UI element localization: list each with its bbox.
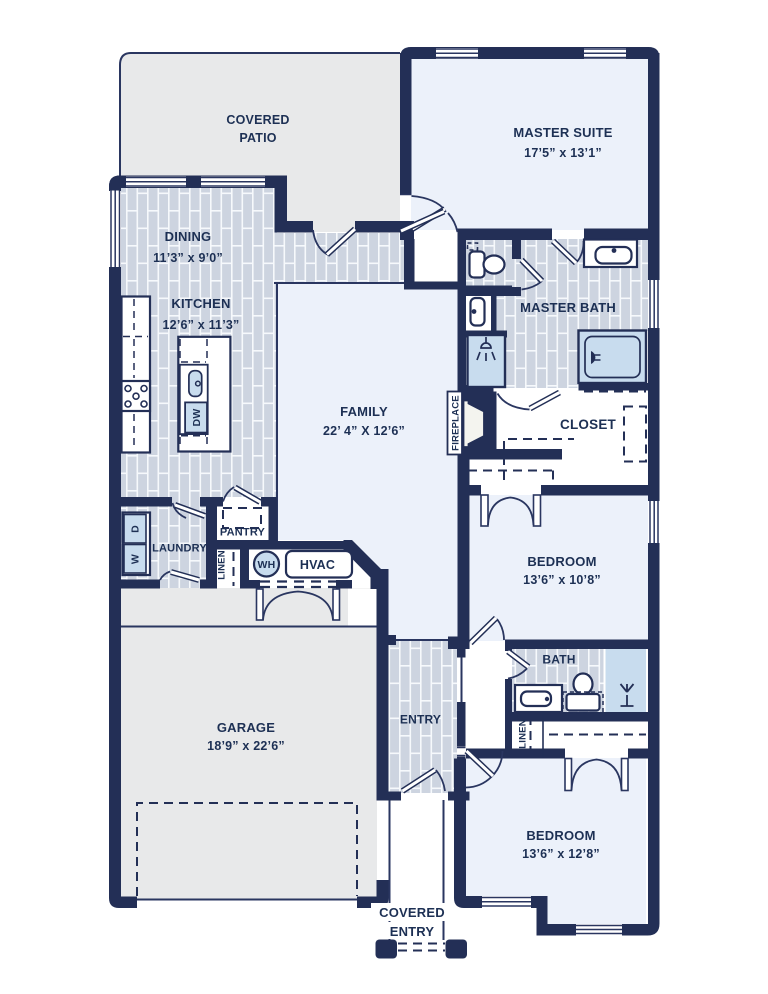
svg-text:ENTRY: ENTRY	[400, 713, 441, 727]
svg-text:DW: DW	[191, 409, 203, 427]
svg-text:W: W	[130, 554, 142, 564]
svg-text:BEDROOM: BEDROOM	[527, 554, 596, 569]
svg-text:BEDROOM: BEDROOM	[526, 828, 595, 843]
svg-text:LINEN: LINEN	[518, 719, 529, 749]
svg-text:13’6” x 10’8”: 13’6” x 10’8”	[523, 573, 601, 587]
svg-text:PANTRY: PANTRY	[220, 527, 266, 539]
svg-text:11’3” x 9’0”: 11’3” x 9’0”	[153, 251, 223, 265]
svg-text:FAMILY: FAMILY	[340, 404, 388, 419]
svg-text:22’ 4” X 12’6”: 22’ 4” X 12’6”	[323, 424, 405, 438]
svg-text:12’6” x 11’3”: 12’6” x 11’3”	[163, 318, 240, 332]
svg-text:DINING: DINING	[165, 229, 212, 244]
svg-text:GARAGE: GARAGE	[217, 720, 275, 735]
svg-text:CLOSET: CLOSET	[560, 417, 617, 432]
svg-text:FIREPLACE: FIREPLACE	[451, 395, 462, 451]
svg-text:LAUNDRY: LAUNDRY	[152, 543, 207, 555]
svg-text:PATIO: PATIO	[239, 131, 276, 145]
svg-text:HVAC: HVAC	[300, 558, 335, 572]
svg-text:17’5” x 13’1”: 17’5” x 13’1”	[524, 146, 602, 160]
svg-text:WH: WH	[258, 559, 276, 571]
svg-text:COVERED: COVERED	[379, 905, 445, 920]
svg-text:KITCHEN: KITCHEN	[171, 296, 230, 311]
svg-text:BATH: BATH	[542, 653, 575, 667]
svg-text:MASTER BATH: MASTER BATH	[520, 300, 616, 315]
svg-text:18’9” x 22’6”: 18’9” x 22’6”	[207, 739, 285, 753]
svg-text:D: D	[130, 525, 142, 533]
svg-text:MASTER SUITE: MASTER SUITE	[513, 125, 612, 140]
svg-text:ENTRY: ENTRY	[390, 924, 435, 939]
svg-text:LINEN: LINEN	[217, 550, 228, 580]
svg-text:COVERED: COVERED	[226, 113, 289, 127]
svg-text:13’6” x 12’8”: 13’6” x 12’8”	[522, 847, 600, 861]
